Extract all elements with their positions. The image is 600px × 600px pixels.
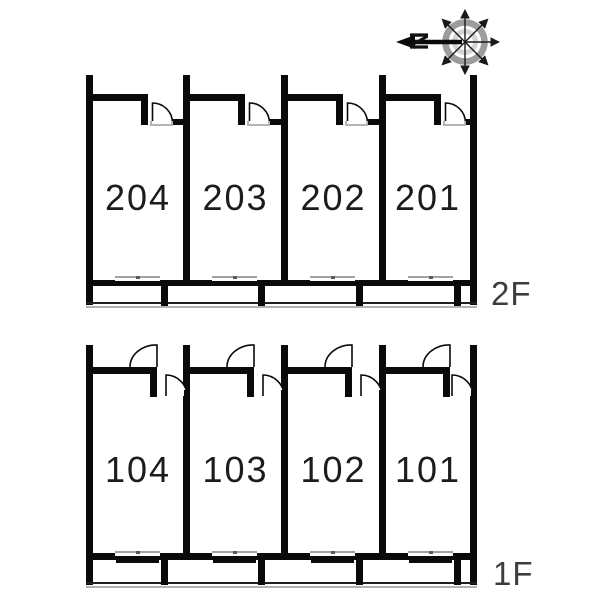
balcony-wall	[356, 280, 363, 306]
door-sill	[443, 121, 466, 126]
entry-door-swing-icon	[128, 341, 159, 368]
wall	[183, 94, 245, 101]
window-icon	[408, 276, 453, 281]
window-icon	[212, 551, 257, 563]
north-label: N	[404, 25, 434, 57]
door-sill	[247, 121, 270, 126]
wall	[183, 367, 254, 374]
balcony-wall	[161, 280, 168, 306]
unit-201: 201	[379, 75, 477, 308]
terrace-wall	[161, 553, 168, 585]
wall	[150, 367, 157, 397]
unit-number: 204	[86, 180, 190, 216]
wall	[434, 94, 441, 125]
terrace-wall	[258, 553, 265, 585]
wall	[281, 94, 343, 101]
wall	[379, 367, 450, 374]
wall	[336, 94, 343, 125]
wall	[471, 390, 477, 397]
unit-204: 204	[86, 75, 190, 308]
terrace-wall	[454, 553, 461, 585]
window-icon	[212, 276, 257, 281]
wall	[238, 94, 245, 125]
window-icon	[115, 276, 160, 281]
unit-103: 103	[183, 345, 288, 587]
unit-number: 201	[379, 180, 477, 216]
entry-door-swing-icon	[225, 341, 256, 368]
wall	[247, 367, 254, 397]
unit-number: 101	[379, 452, 477, 488]
entry-door-swing-icon	[323, 341, 354, 368]
wall	[345, 367, 352, 397]
balcony-wall	[454, 280, 461, 306]
unit-number: 202	[281, 180, 386, 216]
wall	[281, 367, 352, 374]
wall	[379, 94, 441, 101]
unit-102: 102	[281, 345, 386, 587]
unit-number: 102	[281, 452, 386, 488]
door-sill	[345, 121, 368, 126]
terrace-wall	[356, 553, 363, 585]
floor-label-1f: 1F	[493, 557, 534, 590]
window-icon	[408, 551, 453, 563]
window-icon	[115, 551, 160, 563]
entry-door-swing-icon	[421, 341, 452, 368]
wall	[86, 94, 148, 101]
unit-number: 203	[183, 180, 288, 216]
wall	[141, 94, 148, 125]
balcony-wall	[258, 280, 265, 306]
unit-104: 104	[86, 345, 190, 587]
unit-number: 103	[183, 452, 288, 488]
window-icon	[310, 276, 355, 281]
unit-101: 101	[379, 345, 477, 587]
unit-203: 203	[183, 75, 288, 308]
unit-202: 202	[281, 75, 386, 308]
window-icon	[310, 551, 355, 563]
floor-label-2f: 2F	[491, 277, 532, 310]
wall	[86, 367, 157, 374]
unit-number: 104	[86, 452, 190, 488]
door-sill	[150, 121, 173, 126]
floor-plan-page: N 2F 204 203 202	[0, 0, 600, 600]
